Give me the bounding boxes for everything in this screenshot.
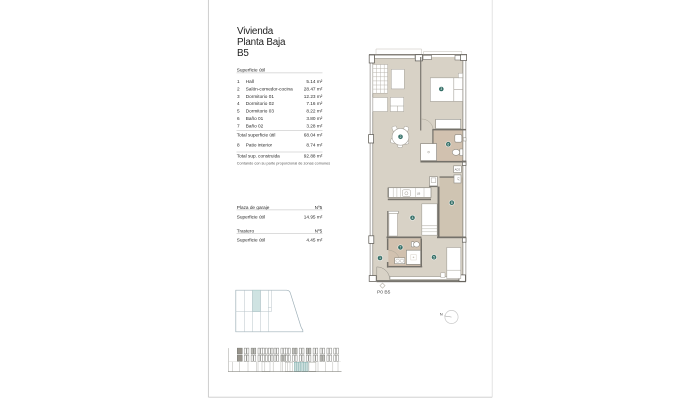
svg-text:Trastero: Trastero	[237, 228, 255, 233]
svg-text:8.74 m²: 8.74 m²	[306, 142, 322, 147]
svg-text:1: 1	[237, 79, 240, 84]
svg-text:14.95 m²: 14.95 m²	[304, 215, 323, 220]
svg-text:5: 5	[237, 109, 240, 114]
svg-text:4.45 m²: 4.45 m²	[306, 238, 322, 243]
svg-text:ACO: ACO	[455, 167, 461, 171]
svg-text:1: 1	[379, 256, 381, 260]
svg-text:Superficie útil: Superficie útil	[237, 238, 265, 243]
svg-text:Dormitorio 02: Dormitorio 02	[246, 101, 275, 106]
svg-text:Dormitorio 03: Dormitorio 03	[246, 109, 275, 114]
svg-text:Total sup. construida: Total sup. construida	[237, 154, 280, 159]
svg-text:Baño 02: Baño 02	[246, 123, 264, 128]
svg-text:4: 4	[237, 101, 240, 106]
svg-text:8: 8	[451, 201, 453, 205]
svg-text:Total superficie útil: Total superficie útil	[237, 133, 276, 138]
svg-text:7: 7	[237, 123, 240, 128]
svg-text:6: 6	[237, 116, 240, 121]
svg-text:Hall: Hall	[246, 79, 254, 84]
svg-text:Planta Baja: Planta Baja	[237, 37, 286, 48]
svg-text:LV: LV	[457, 178, 460, 181]
svg-text:LB: LB	[417, 191, 421, 195]
svg-text:3: 3	[237, 94, 240, 99]
svg-text:P0 B5: P0 B5	[377, 289, 391, 295]
svg-text:28.47 m²: 28.47 m²	[304, 87, 323, 92]
svg-text:92.88 m²: 92.88 m²	[304, 154, 323, 159]
svg-text:Baño 01: Baño 01	[246, 116, 264, 121]
svg-text:5: 5	[433, 255, 435, 259]
svg-text:Superficie útil: Superficie útil	[237, 215, 265, 220]
svg-text:Superficie útil: Superficie útil	[237, 68, 265, 73]
svg-text:2: 2	[400, 135, 402, 139]
svg-text:3: 3	[440, 87, 442, 91]
svg-text:8.22 m²: 8.22 m²	[306, 109, 322, 114]
svg-text:3.80 m²: 3.80 m²	[306, 116, 322, 121]
svg-text:7.16 m²: 7.16 m²	[306, 101, 322, 106]
svg-text:2: 2	[237, 87, 240, 92]
svg-text:Vivienda: Vivienda	[237, 26, 274, 37]
svg-text:7: 7	[399, 246, 401, 250]
svg-text:Nº5: Nº5	[315, 228, 323, 233]
svg-text:68.04 m²: 68.04 m²	[304, 133, 323, 138]
svg-text:Plaza de garaje: Plaza de garaje	[237, 205, 270, 210]
svg-text:Dormitorio 01: Dormitorio 01	[246, 94, 275, 99]
svg-text:3.28 m²: 3.28 m²	[306, 123, 322, 128]
svg-text:6: 6	[447, 142, 449, 146]
svg-text:Nº5: Nº5	[315, 205, 323, 210]
svg-text:Contando con su parte proporci: Contando con su parte proporcional de zo…	[237, 162, 330, 166]
svg-text:N: N	[440, 312, 443, 317]
svg-text:8: 8	[237, 142, 240, 147]
svg-text:B5: B5	[237, 48, 249, 59]
svg-text:4: 4	[412, 216, 414, 220]
svg-text:12.23 m²: 12.23 m²	[304, 94, 323, 99]
svg-text:Patio interior: Patio interior	[246, 142, 273, 147]
svg-text:Salón-comedor-cocina: Salón-comedor-cocina	[246, 87, 293, 92]
svg-text:5.14 m²: 5.14 m²	[306, 79, 322, 84]
